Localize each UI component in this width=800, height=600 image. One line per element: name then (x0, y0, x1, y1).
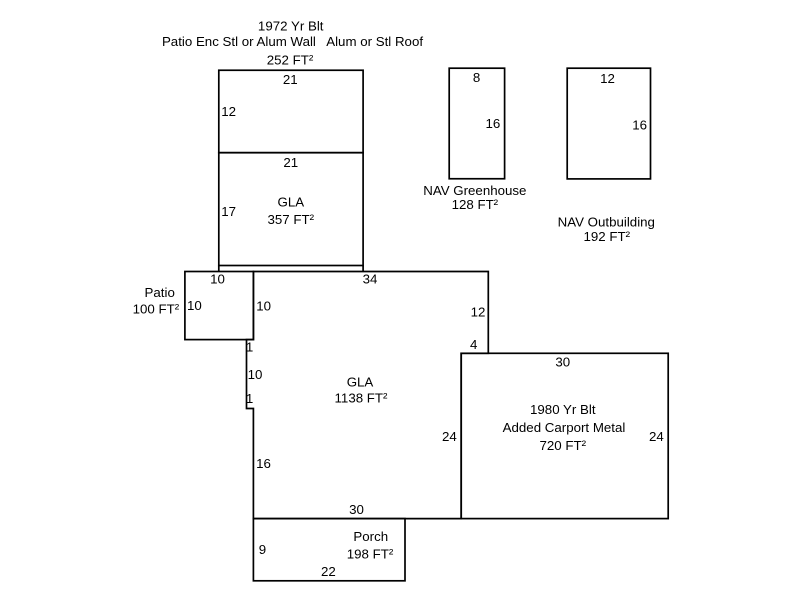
svg-text:GLA: GLA (347, 374, 374, 389)
svg-text:Porch: Porch (353, 529, 388, 544)
svg-text:1972 Yr Blt: 1972 Yr Blt (258, 19, 324, 34)
svg-text:128 FT²: 128 FT² (452, 197, 499, 212)
svg-text:21: 21 (283, 72, 298, 87)
svg-text:16: 16 (256, 456, 271, 471)
svg-text:12: 12 (471, 305, 486, 320)
svg-text:4: 4 (470, 337, 477, 352)
svg-text:720 FT²: 720 FT² (540, 438, 587, 453)
svg-text:192 FT²: 192 FT² (584, 229, 631, 244)
svg-text:24: 24 (442, 429, 457, 444)
svg-text:8: 8 (473, 70, 480, 85)
svg-text:16: 16 (632, 117, 647, 132)
svg-text:10: 10 (248, 367, 263, 382)
svg-text:12: 12 (221, 104, 236, 119)
svg-text:1: 1 (246, 339, 253, 354)
svg-text:22: 22 (321, 564, 336, 579)
svg-text:GLA: GLA (277, 195, 304, 210)
svg-text:30: 30 (555, 354, 570, 369)
svg-text:1138 FT²: 1138 FT² (335, 390, 389, 405)
svg-text:24: 24 (649, 429, 664, 444)
svg-text:NAV Outbuilding: NAV Outbuilding (558, 214, 655, 229)
svg-text:252 FT²: 252 FT² (267, 52, 314, 67)
svg-text:198 FT²: 198 FT² (347, 547, 394, 562)
svg-text:1980 Yr Blt: 1980 Yr Blt (530, 402, 596, 417)
svg-text:34: 34 (363, 272, 378, 287)
svg-text:12: 12 (600, 71, 615, 86)
svg-text:10: 10 (256, 298, 271, 313)
svg-text:9: 9 (259, 542, 266, 557)
svg-text:Added Carport Metal: Added Carport Metal (503, 420, 626, 435)
svg-text:Patio: Patio (145, 285, 175, 300)
svg-text:16: 16 (486, 116, 501, 131)
svg-text:30: 30 (349, 502, 364, 517)
svg-text:Patio Enc Stl or Alum Wall A: Patio Enc Stl or Alum Wall Alum or Stl R… (162, 34, 423, 49)
svg-text:10: 10 (210, 272, 225, 287)
svg-text:357 FT²: 357 FT² (268, 212, 315, 227)
svg-text:1: 1 (246, 391, 253, 406)
svg-text:10: 10 (187, 298, 202, 313)
svg-text:100 FT²: 100 FT² (133, 301, 180, 316)
svg-text:17: 17 (221, 204, 236, 219)
svg-text:21: 21 (283, 155, 298, 170)
